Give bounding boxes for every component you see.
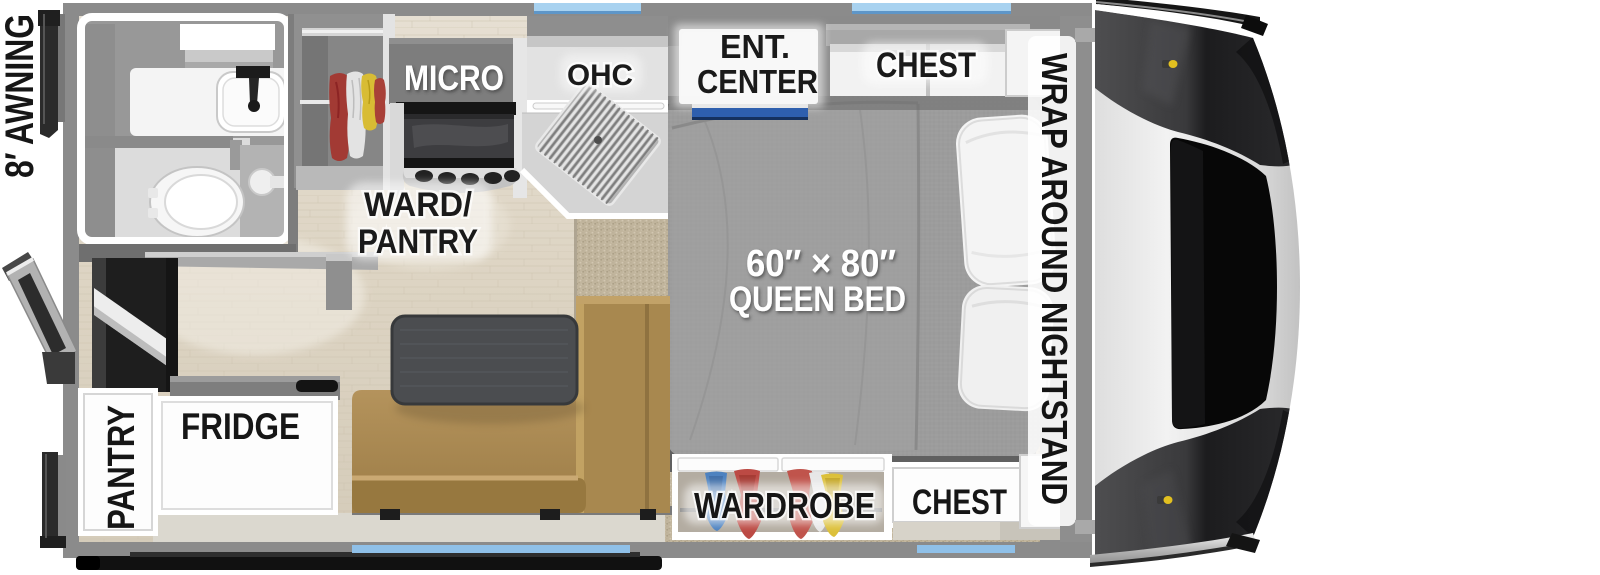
svg-text:WARDROBE: WARDROBE — [694, 485, 875, 526]
svg-text:CHEST: CHEST — [876, 46, 976, 85]
svg-text:WARD/: WARD/ — [364, 186, 473, 224]
svg-text:QUEEN BED: QUEEN BED — [729, 280, 906, 319]
svg-text:PANTRY: PANTRY — [358, 223, 478, 261]
svg-text:OHC: OHC — [567, 59, 633, 92]
svg-text:PANTRY: PANTRY — [101, 405, 143, 530]
svg-text:WRAP AROUND NIGHTSTAND: WRAP AROUND NIGHTSTAND — [1034, 53, 1075, 505]
svg-text:8′ AWNING: 8′ AWNING — [0, 14, 42, 178]
svg-text:CENTER: CENTER — [697, 63, 818, 100]
svg-text:ENT.: ENT. — [720, 28, 790, 65]
svg-text:60″ × 80″: 60″ × 80″ — [746, 243, 896, 285]
svg-text:MICRO: MICRO — [404, 59, 504, 98]
svg-text:FRIDGE: FRIDGE — [181, 406, 300, 447]
svg-text:CHEST: CHEST — [912, 483, 1007, 522]
